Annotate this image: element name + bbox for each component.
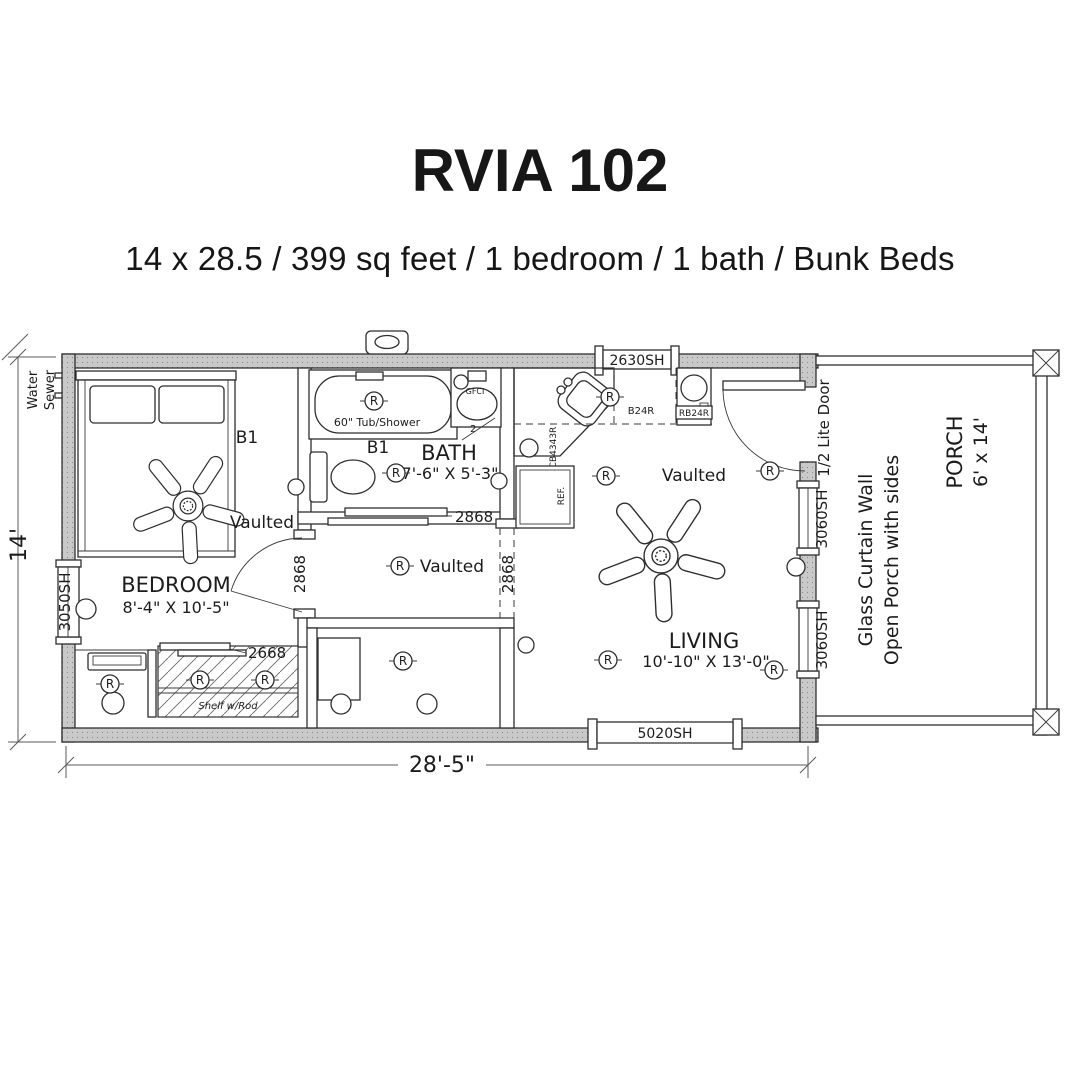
width-dimension-label: 28'-5"	[409, 753, 475, 778]
ref-label: REF.	[557, 487, 567, 506]
bedroom: B1 Vaulted BEDROOM 8'-4" X 10'-5" 2868 S…	[76, 371, 309, 717]
svg-text:R: R	[770, 663, 778, 677]
entry-door-label: 1/2 Lite Door	[815, 378, 833, 476]
porch-size: 6' x 14'	[970, 417, 992, 487]
receptacle-symbol: R	[756, 462, 784, 480]
tub-shower: 60" Tub/Shower	[309, 370, 457, 439]
vanity-sink: GFCI	[451, 368, 501, 427]
bedroom-door: 2868	[231, 538, 309, 612]
toilet	[310, 452, 375, 502]
bedroom-door-label: 2868	[291, 555, 309, 593]
window-5020sh-label: 5020SH	[637, 726, 692, 742]
refrigerator: REF.	[516, 466, 574, 528]
svg-text:R: R	[606, 390, 614, 404]
window-3060sh-upper: 3060SH	[797, 481, 831, 555]
bath-door-label: 2868	[455, 508, 493, 526]
bath-size: 7'-6" X 5'-3"	[402, 464, 499, 483]
bath-name: BATH	[421, 441, 477, 465]
living-name: LIVING	[669, 629, 739, 653]
range-cabinet-rb24r: RB24R	[676, 368, 712, 425]
entry-door: 1/2 Lite Door	[723, 378, 833, 476]
receptacle-symbol: R	[592, 467, 620, 485]
window-5020sh: 5020SH	[588, 719, 742, 749]
wall-light	[787, 558, 805, 576]
hall-vaulted-label: Vaulted	[420, 557, 484, 577]
sewer-label: Sewer	[43, 369, 58, 410]
window-3050sh: 3050SH	[56, 560, 81, 644]
gfci-label: GFCI	[466, 387, 485, 396]
svg-text:R: R	[196, 673, 204, 687]
corner-sink-cabinet: LCB4343R	[514, 368, 616, 473]
svg-text:R: R	[396, 559, 404, 573]
receptacle-symbol: R	[96, 675, 124, 693]
bath-bunk-label: B1	[367, 438, 389, 458]
bunk-room	[318, 638, 437, 714]
svg-text:R: R	[399, 654, 407, 668]
water-label: Water	[26, 370, 41, 409]
svg-text:R: R	[106, 677, 114, 691]
svg-text:R: R	[261, 673, 269, 687]
bath: 60" Tub/Shower GFCI B1 BATH 7'-6" X 5'-3…	[309, 368, 507, 526]
porch-note-line2: Open Porch with sides	[881, 455, 903, 665]
wall-light	[520, 439, 538, 457]
hall-opening-label: 2868	[499, 555, 517, 593]
wall-light	[417, 694, 437, 714]
bedroom-name: BEDROOM	[121, 573, 231, 597]
ceiling-fan-living	[597, 497, 727, 622]
b24r-label: B24R	[628, 406, 655, 417]
window-2630sh: 2630SH	[595, 346, 679, 375]
receptacle-symbol: R	[594, 651, 622, 669]
floor-plan-drawing: 14' 28'-5" Water Sewer	[0, 320, 1080, 820]
roof-vent	[366, 331, 408, 354]
hall: Vaulted 2868	[420, 555, 517, 593]
wall-light	[331, 694, 351, 714]
floor-plan-page: RVIA 102 14 x 28.5 / 399 sq feet / 1 bed…	[0, 0, 1080, 1080]
living-vaulted-label: Vaulted	[662, 466, 726, 486]
window-3060sh-upper-label: 3060SH	[813, 490, 831, 549]
closet-shelf-label: Shelf w/Rod	[198, 701, 258, 712]
wall-light	[491, 473, 507, 489]
window-3060sh-lower-label: 3060SH	[813, 611, 831, 670]
svg-text:R: R	[602, 469, 610, 483]
svg-text:R: R	[392, 466, 400, 480]
tub-label: 60" Tub/Shower	[334, 416, 421, 429]
porch-post-top	[1033, 350, 1059, 376]
porch: Glass Curtain Wall Open Porch with sides…	[816, 350, 1059, 735]
bedroom-size: 8'-4" X 10'-5"	[122, 598, 229, 617]
bedroom-vaulted-label: Vaulted	[230, 513, 294, 533]
rb24r-label: RB24R	[679, 409, 709, 419]
window-3060sh-lower: 3060SH	[797, 601, 831, 678]
porch-name: PORCH	[943, 415, 967, 488]
height-dimension-label: 14'	[7, 528, 32, 562]
porch-note-line1: Glass Curtain Wall	[855, 474, 877, 647]
window-2630sh-label: 2630SH	[609, 353, 664, 369]
wall-light	[518, 637, 534, 653]
bedroom-bunk-label: B1	[236, 428, 258, 448]
wall-light	[76, 599, 96, 619]
porch-post-bottom	[1033, 709, 1059, 735]
living-size: 10'-10" X 13'-0"	[642, 652, 769, 671]
svg-text:R: R	[604, 653, 612, 667]
page-subtitle: 14 x 28.5 / 399 sq feet / 1 bedroom / 1 …	[0, 237, 1080, 281]
window-3050sh-label: 3050SH	[56, 573, 74, 632]
svg-text:R: R	[370, 394, 378, 408]
utility-labels: Water Sewer	[26, 369, 64, 410]
receptacle-symbol: R	[389, 652, 417, 670]
bath-step-note: 2	[470, 424, 476, 435]
page-title: RVIA 102	[0, 140, 1080, 202]
receptacle-symbol: R	[386, 557, 414, 575]
closet-door-label: 2668	[248, 644, 286, 662]
svg-text:R: R	[766, 464, 774, 478]
bunk-bed	[318, 638, 360, 700]
wall-light	[288, 479, 304, 495]
stool	[102, 692, 124, 714]
